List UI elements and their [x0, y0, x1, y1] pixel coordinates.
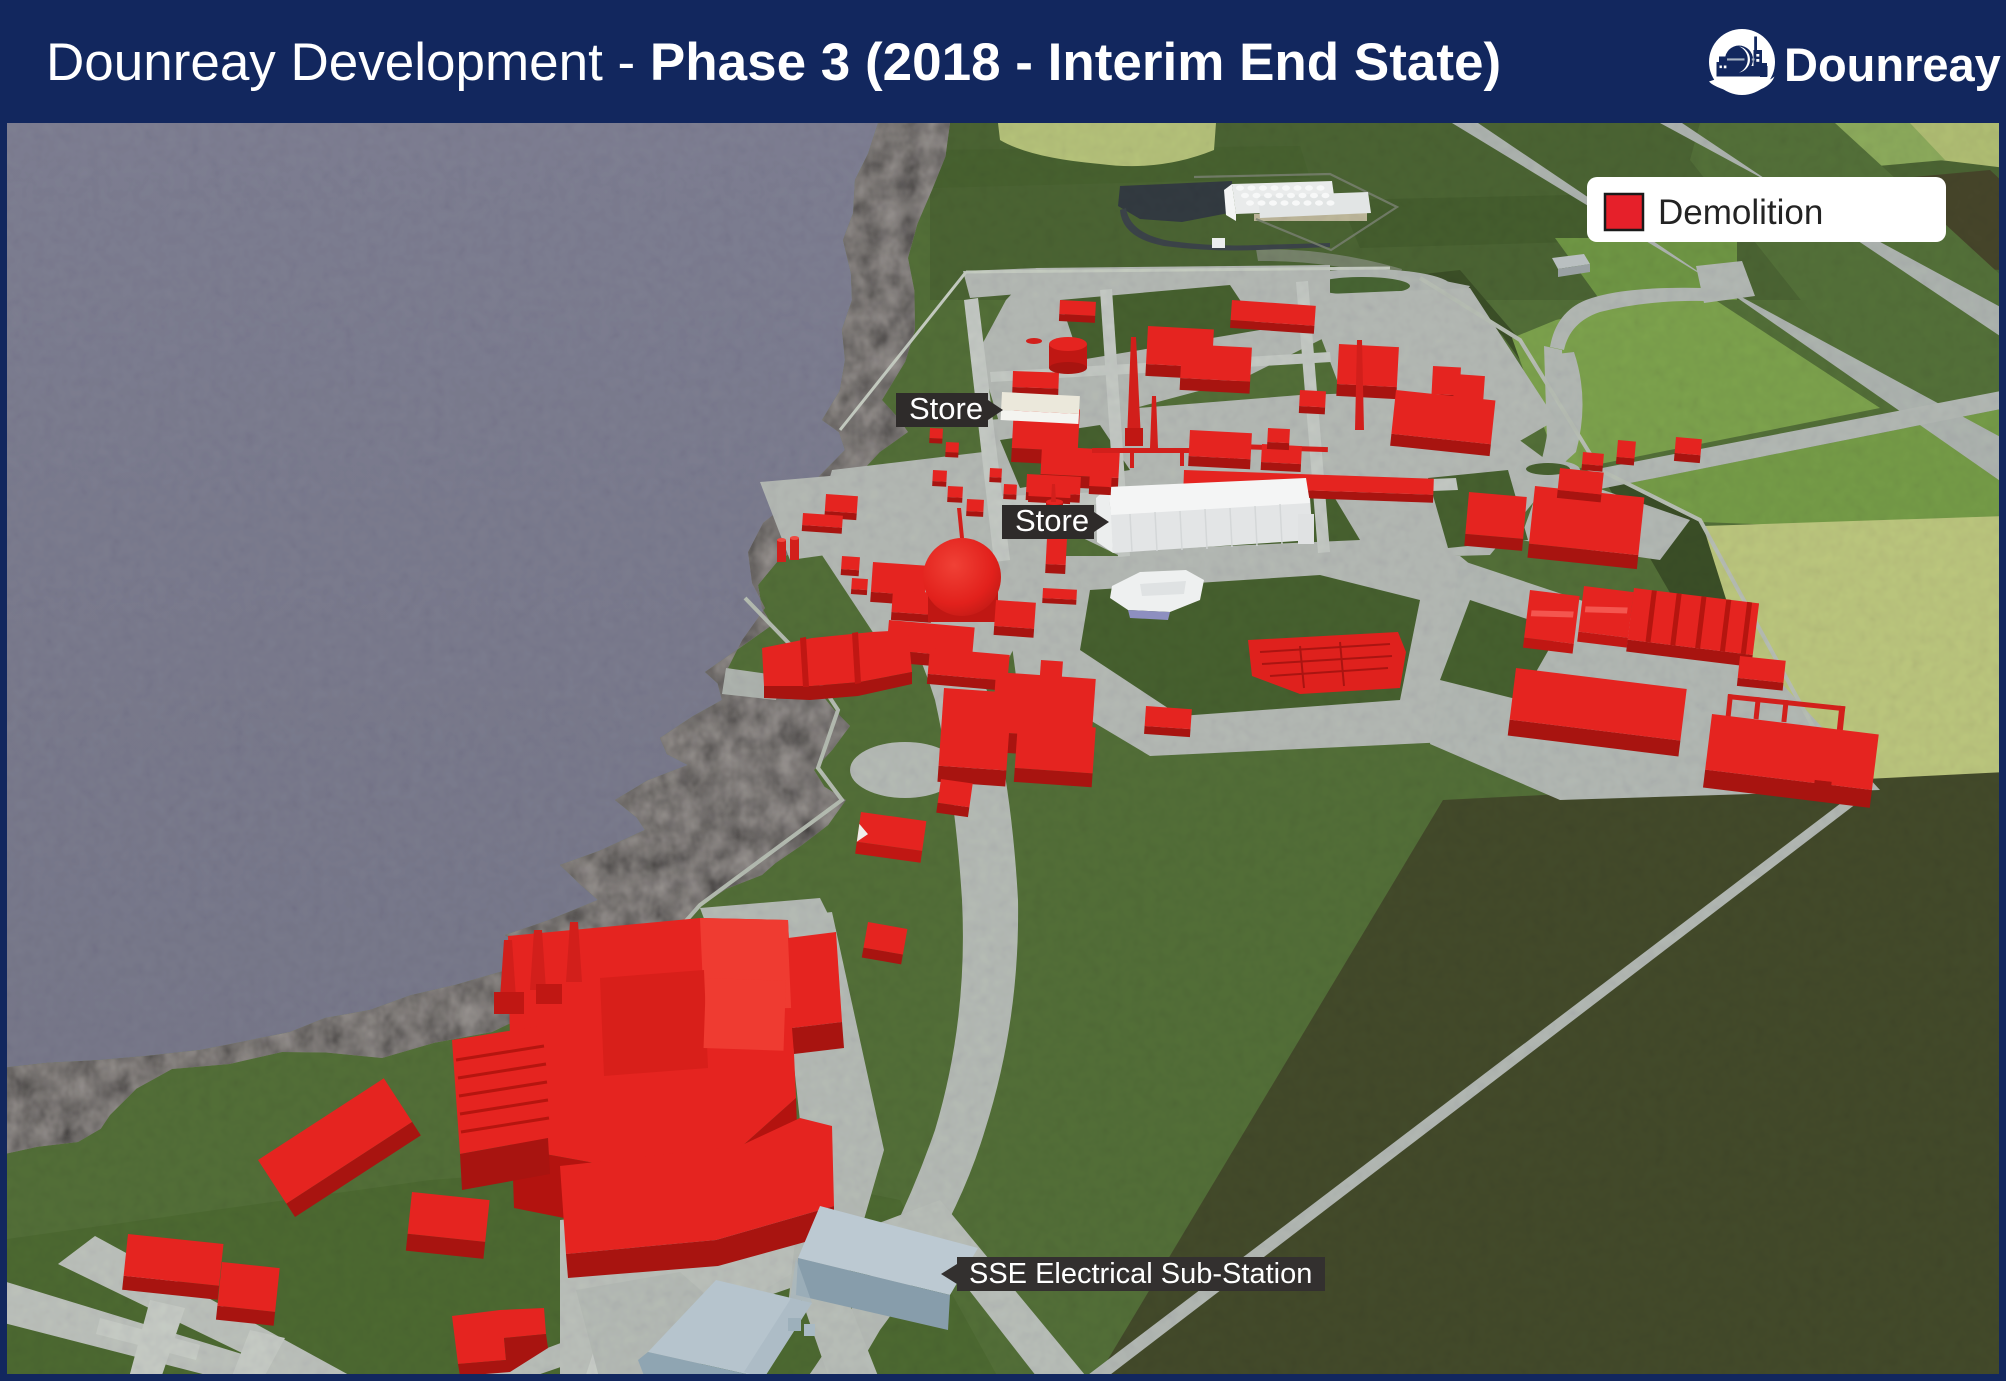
svg-text:Store: Store — [1015, 503, 1089, 538]
svg-text:Dounreay Development - Phase 3: Dounreay Development - Phase 3 (2018 - I… — [46, 33, 1501, 92]
svg-text:Store: Store — [909, 391, 983, 426]
svg-text:SSE Electrical Sub-Station: SSE Electrical Sub-Station — [969, 1258, 1312, 1290]
svg-text:Dounreay: Dounreay — [1784, 38, 2001, 91]
svg-text:Demolition: Demolition — [1658, 193, 1823, 232]
